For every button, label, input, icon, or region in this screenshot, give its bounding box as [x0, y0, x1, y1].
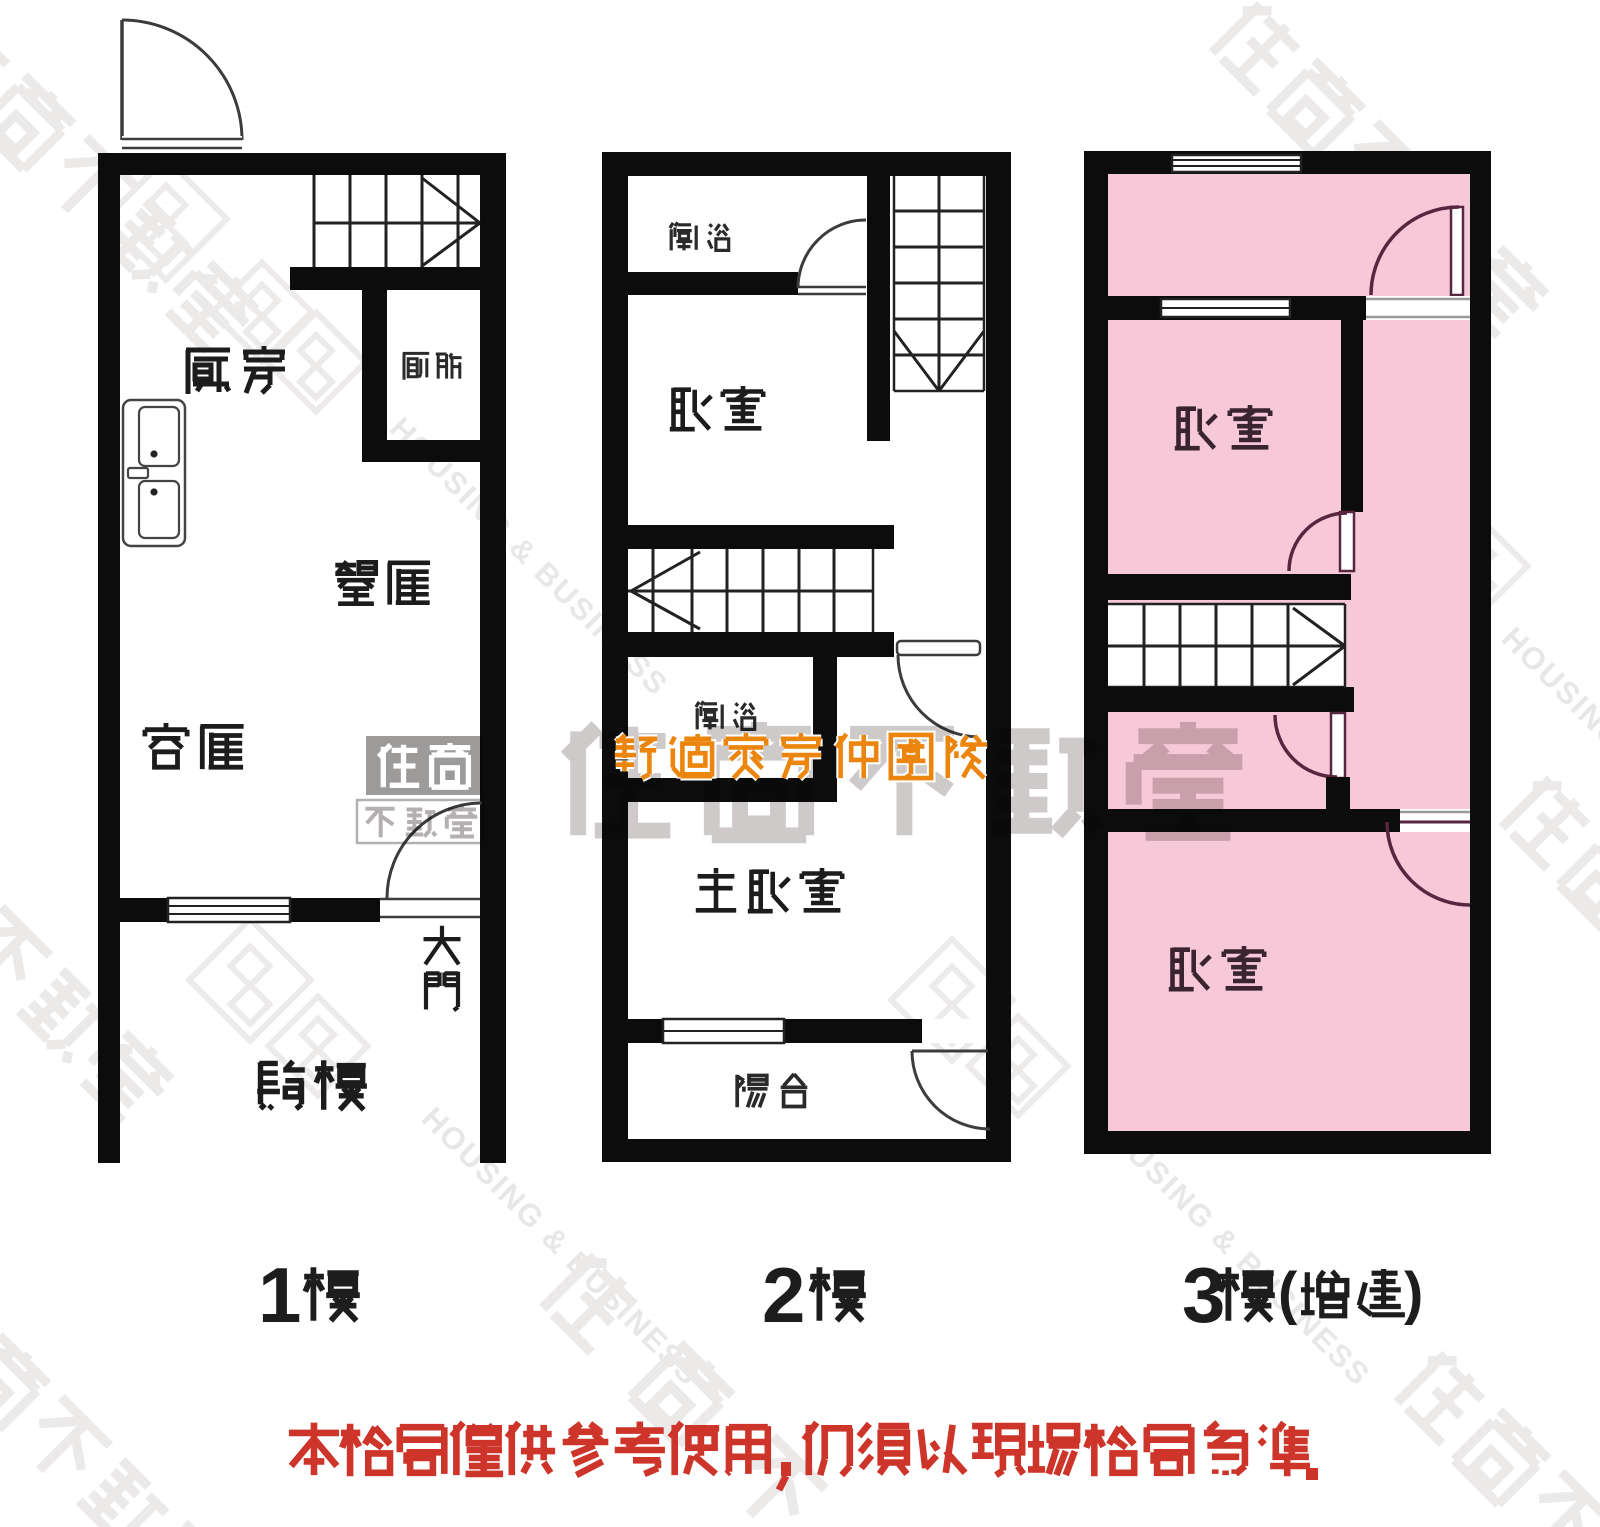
svg-text:1: 1: [258, 1251, 301, 1339]
svg-text:(: (: [1278, 1261, 1298, 1326]
svg-text:3: 3: [1182, 1251, 1225, 1339]
svg-text:2: 2: [762, 1251, 805, 1339]
svg-text:): ): [1404, 1261, 1423, 1326]
